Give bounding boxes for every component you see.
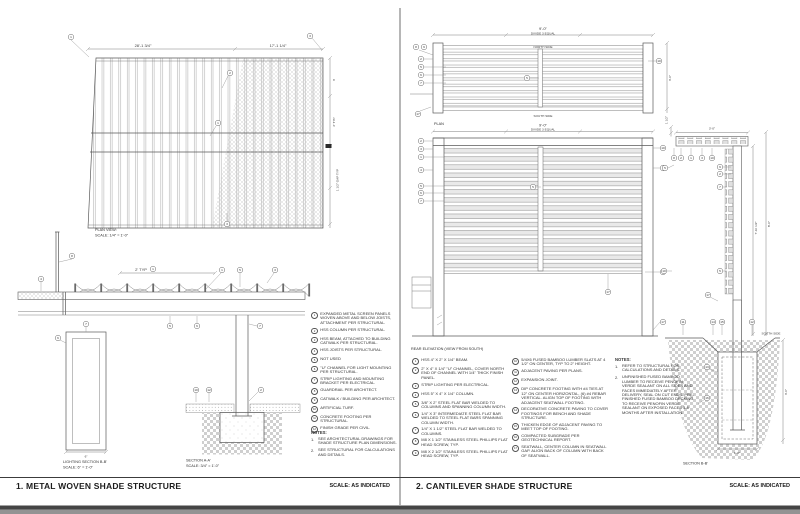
dimension-label: 9'-0" bbox=[539, 26, 548, 31]
dimension-label: 8'-0" bbox=[767, 221, 771, 227]
svg-text:1: 1 bbox=[70, 35, 72, 39]
view-label: PLAN bbox=[434, 122, 444, 126]
keynote-number: 8 bbox=[311, 388, 318, 395]
svg-text:14: 14 bbox=[711, 320, 715, 324]
keynote-item: 8 GUARDRAIL PER ARCHITECT. bbox=[311, 388, 399, 395]
keynote-number: 4 bbox=[412, 392, 419, 399]
right-keynote-list-a: 1 HSS 4" X 2" X 1/4" BEAM. 2 2" X 4" X 1… bbox=[412, 358, 508, 461]
dimension-label: 3' bbox=[332, 78, 336, 81]
svg-text:6: 6 bbox=[196, 324, 198, 328]
keynote-number: 9 bbox=[311, 397, 318, 404]
keynote-item: 15 THICKEN EDGE OF ADJACENT PAVING TO ME… bbox=[512, 423, 610, 432]
view-scale-label: SCALE: 3/4" = 1'-0" bbox=[186, 464, 220, 468]
sheet-bottom-edge bbox=[0, 506, 800, 514]
keynote-item: 6 1/4" X 3" INTERMEDIATE STEEL FLAT BAR … bbox=[412, 412, 508, 425]
svg-text:1: 1 bbox=[690, 156, 692, 160]
keynote-number: 2 bbox=[412, 367, 419, 374]
keynote-item: 4 HSS 5" X 4" X 1/4" COLUMN. bbox=[412, 392, 508, 399]
svg-text:7: 7 bbox=[259, 324, 261, 328]
svg-text:2: 2 bbox=[420, 139, 422, 143]
keynote-text: 2" X 4" X 1/4" "U" CHANNEL, COVER NORTH … bbox=[421, 367, 508, 380]
dimension-label: 6" bbox=[85, 455, 88, 459]
svg-text:4: 4 bbox=[420, 168, 422, 172]
side-label: NORTH SIDE bbox=[533, 45, 552, 49]
keynote-number: 13 bbox=[512, 387, 519, 394]
keynote-text: THICKEN EDGE OF ADJACENT PAVING TO MEET … bbox=[521, 423, 610, 432]
left-plan-view-drawing: 28'-1 3/4" 17'-1 1/4" 3' 2' TYP 1 1/2" G… bbox=[71, 38, 340, 238]
svg-text:10: 10 bbox=[657, 59, 661, 63]
keynote-item: 13 DIP CONCRETE FOOTING WITH #4 TIES AT … bbox=[512, 387, 610, 405]
svg-text:1: 1 bbox=[221, 268, 223, 272]
keynote-number: 2 bbox=[311, 328, 318, 335]
keynote-item: 2 2" X 4" X 1/4" "U" CHANNEL, COVER NORT… bbox=[412, 367, 508, 380]
note-text: REFER TO STRUCTURAL FOR CALCULATIONS AND… bbox=[622, 364, 697, 373]
svg-text:1: 1 bbox=[217, 121, 219, 125]
svg-text:12: 12 bbox=[207, 388, 211, 392]
keynote-item: 1 HSS 4" X 2" X 1/4" BEAM. bbox=[412, 358, 508, 365]
keynote-text: 1/4" X 1 1/2" STEEL FLAT BAR WELDED TO C… bbox=[421, 427, 508, 436]
note-number: 1. bbox=[615, 364, 620, 373]
dimension-label: 2' TYP bbox=[135, 267, 147, 272]
note-text: SEE ARCHITECTURAL DRAWINGS FOR SHADE STR… bbox=[318, 437, 399, 446]
svg-text:7: 7 bbox=[420, 199, 422, 203]
dimension-label: 1 1/2" bbox=[665, 116, 669, 124]
keynote-text: STRIP LIGHTING PER ELECTRICAL. bbox=[421, 383, 489, 387]
keynote-text: HSS 5" X 4" X 1/4" COLUMN. bbox=[421, 392, 474, 396]
keynote-item: 5 3/8" X 2" STEEL FLAT BAR WELDED TO COL… bbox=[412, 401, 508, 410]
svg-text:2: 2 bbox=[420, 57, 422, 61]
svg-text:1: 1 bbox=[420, 155, 422, 159]
keynote-text: STRIP LIGHTING AND MOUNTING BRACKET PER … bbox=[320, 377, 399, 386]
keynote-number: 1 bbox=[412, 358, 419, 365]
keynote-item: 12 EXPANSION JOINT. bbox=[512, 378, 610, 385]
keynote-number: 1 bbox=[311, 312, 318, 319]
keynote-number: 7 bbox=[412, 427, 419, 434]
svg-text:17: 17 bbox=[661, 320, 665, 324]
svg-text:17: 17 bbox=[706, 293, 710, 297]
right-side-section-drawing: 3'-0" 1 1/2" 7'-10 1/2" 8'-0" bbox=[665, 116, 772, 336]
keynote-item: 3 HSS BEAM, ATTACHED TO BUILDING CATWALK… bbox=[311, 337, 399, 346]
keynote-number: 4 bbox=[311, 348, 318, 355]
keynote-number: 5 bbox=[311, 357, 318, 364]
svg-text:7: 7 bbox=[420, 81, 422, 85]
keynote-item: 1 EXPANDED METAL SCREEN PANELS WOVEN ABO… bbox=[311, 312, 399, 325]
keynote-number: 14 bbox=[512, 407, 519, 414]
notes-heading: NOTES: bbox=[615, 357, 697, 362]
keynote-number: 17 bbox=[512, 445, 519, 452]
view-label: PLAN VIEW: bbox=[95, 228, 117, 232]
keynote-number: 10 bbox=[512, 358, 519, 365]
note-item: 1. REFER TO STRUCTURAL FOR CALCULATIONS … bbox=[615, 364, 697, 373]
view-label: SECTION B-B' bbox=[683, 462, 708, 466]
svg-text:16: 16 bbox=[705, 396, 709, 400]
note-number: 2. bbox=[615, 375, 620, 415]
svg-text:3: 3 bbox=[420, 147, 422, 151]
keynote-text: "U" CHANNEL FOR LIGHT MOUNTING PER STRUC… bbox=[320, 366, 399, 375]
note-number: 2. bbox=[311, 448, 316, 457]
keynote-text: 5/4X6 FUSED BAMBOO LUMBER SLATS AT 4 1/2… bbox=[521, 358, 610, 367]
right-keynote-list-b: 10 5/4X6 FUSED BAMBOO LUMBER SLATS AT 4 … bbox=[512, 358, 610, 461]
svg-text:7: 7 bbox=[85, 322, 87, 326]
svg-text:2: 2 bbox=[260, 388, 262, 392]
keynote-item: 11 ADJACENT PAVING PER PLANS. bbox=[512, 369, 610, 376]
keynote-text: EXPANDED METAL SCREEN PANELS WOVEN ABOVE… bbox=[320, 312, 399, 325]
side-label: SOUTH SIDE bbox=[762, 332, 781, 336]
dimension-label: 28'-1 3/4" bbox=[135, 43, 152, 48]
keynote-number: 16 bbox=[512, 434, 519, 441]
svg-text:3: 3 bbox=[309, 34, 311, 38]
svg-text:17: 17 bbox=[416, 112, 420, 116]
keynote-item: 17 SEATWALL, CENTER COLUMN IN SEATWALL G… bbox=[512, 445, 610, 458]
view-scale-label: SCALE: 6" = 1'-0" bbox=[63, 466, 94, 470]
svg-text:6: 6 bbox=[420, 191, 422, 195]
keynote-item: 2 HSS COLUMN PER STRUCTURAL. bbox=[311, 328, 399, 335]
view-label: REAR ELEVATION (VIEW FROM SOUTH) bbox=[411, 347, 484, 351]
svg-text:1: 1 bbox=[152, 267, 154, 271]
keynote-text: M8 X 1 1/2" STAINLESS STEEL PHILLIPS FLA… bbox=[421, 438, 508, 447]
keynote-text: COMPACTED SUBGRADE PER GEOTECHNICAL REPO… bbox=[521, 434, 610, 443]
svg-text:5: 5 bbox=[420, 184, 422, 188]
keynote-text: NOT USED bbox=[320, 357, 341, 361]
panel-scale: SCALE: AS INDICATED bbox=[330, 483, 391, 489]
keynote-item: 11 CONCRETE FOOTING PER STRUCTURAL. bbox=[311, 415, 399, 424]
keynote-item: 10 5/4X6 FUSED BAMBOO LUMBER SLATS AT 4 … bbox=[512, 358, 610, 367]
svg-text:10: 10 bbox=[661, 146, 665, 150]
dimension-label: 1 1/2" GAP TYP bbox=[336, 169, 340, 191]
dimension-label: 7'-10 1/2" bbox=[754, 221, 758, 234]
svg-text:8: 8 bbox=[71, 254, 73, 258]
keynote-text: HSS 4" X 2" X 1/4" BEAM. bbox=[421, 358, 468, 362]
keynote-item: 9 M8 X 2 1/2" STAINLESS STEEL PHILLIPS F… bbox=[412, 450, 508, 459]
svg-text:5: 5 bbox=[532, 185, 534, 189]
keynote-text: SEATWALL, CENTER COLUMN IN SEATWALL GAP.… bbox=[521, 445, 610, 458]
svg-text:5: 5 bbox=[526, 76, 528, 80]
svg-text:5: 5 bbox=[664, 166, 666, 170]
keynote-text: HSS BEAM, ATTACHED TO BUILDING CATWALK P… bbox=[320, 337, 399, 346]
svg-text:2: 2 bbox=[719, 172, 721, 176]
keynote-item: 3 STRIP LIGHTING PER ELECTRICAL. bbox=[412, 383, 508, 390]
svg-text:2: 2 bbox=[680, 156, 682, 160]
keynote-item: 7 STRIP LIGHTING AND MOUNTING BRACKET PE… bbox=[311, 377, 399, 386]
keynote-number: 6 bbox=[412, 412, 419, 419]
keynote-number: 11 bbox=[512, 369, 519, 376]
drawing-sheet: 28'-1 3/4" 17'-1 1/4" 3' 2' TYP 1 1/2" G… bbox=[0, 0, 800, 514]
dimension-label: 17'-1 1/4" bbox=[270, 43, 287, 48]
left-keynote-list: 1 EXPANDED METAL SCREEN PANELS WOVEN ABO… bbox=[311, 312, 399, 435]
note-text: UNFINISHED FUSED BAMBOO LUMBER TO RECEIV… bbox=[622, 375, 697, 415]
svg-text:11: 11 bbox=[681, 320, 684, 324]
svg-text:10: 10 bbox=[194, 388, 198, 392]
svg-text:5: 5 bbox=[169, 324, 171, 328]
drawing-linework: 28'-1 3/4" 17'-1 1/4" 3' 2' TYP 1 1/2" G… bbox=[0, 0, 800, 514]
svg-text:13: 13 bbox=[705, 365, 709, 369]
keynote-item: 5 NOT USED bbox=[311, 357, 399, 364]
note-number: 1. bbox=[311, 437, 316, 446]
keynote-number: 9 bbox=[412, 450, 419, 457]
dimension-label: 2' TYP bbox=[332, 117, 336, 126]
left-section-elevation-drawing: 2' TYP bbox=[18, 232, 310, 410]
keynote-text: 3/8" X 2" STEEL FLAT BAR WELDED TO COLUM… bbox=[421, 401, 508, 410]
keynote-number: 8 bbox=[412, 438, 419, 445]
svg-text:6: 6 bbox=[57, 336, 59, 340]
keynote-number: 3 bbox=[311, 337, 318, 344]
keynote-text: ADJACENT PAVING PER PLANS. bbox=[521, 369, 582, 373]
svg-text:3: 3 bbox=[274, 268, 276, 272]
note-item: 1. SEE ARCHITECTURAL DRAWINGS FOR SHADE … bbox=[311, 437, 399, 446]
keynote-item: 7 1/4" X 1 1/2" STEEL FLAT BAR WELDED TO… bbox=[412, 427, 508, 436]
right-panel-titlebar: 2. CANTILEVER SHADE STRUCTURE SCALE: AS … bbox=[400, 478, 800, 494]
keynote-item: 10 ARTIFICIAL TURF. bbox=[311, 406, 399, 413]
svg-text:6: 6 bbox=[420, 73, 422, 77]
svg-text:5: 5 bbox=[420, 65, 422, 69]
svg-text:3: 3 bbox=[226, 222, 228, 226]
svg-text:9: 9 bbox=[719, 165, 721, 169]
dimension-label: DIVIDE 3 EQUAL bbox=[531, 32, 556, 36]
left-panel-titlebar: 1. METAL WOVEN SHADE STRUCTURE SCALE: AS… bbox=[0, 478, 400, 494]
keynote-text: DIP CONCRETE FOOTING WITH #4 TIES AT 12"… bbox=[521, 387, 610, 405]
view-label: SECTION A-A' bbox=[186, 459, 211, 463]
svg-text:5: 5 bbox=[719, 269, 721, 273]
keynote-item: 16 COMPACTED SUBGRADE PER GEOTECHNICAL R… bbox=[512, 434, 610, 443]
right-general-notes: NOTES: 1. REFER TO STRUCTURAL FOR CALCUL… bbox=[615, 357, 697, 418]
keynote-text: CONCRETE FOOTING PER STRUCTURAL. bbox=[320, 415, 399, 424]
left-footing-section-drawing: SECTION A-A' SCALE: 3/4" = 1'-0" bbox=[186, 392, 300, 468]
svg-text:10: 10 bbox=[662, 269, 666, 273]
note-item: 2. SEE STRUCTURAL FOR CALCULATIONS AND D… bbox=[311, 448, 399, 457]
left-lighting-section-drawing: 6" LIGHTING SECTION B-B' SCALE: 6" = 1'-… bbox=[60, 327, 108, 470]
panel-title: 2. CANTILEVER SHADE STRUCTURE bbox=[416, 481, 572, 491]
keynote-text: EXPANSION JOINT. bbox=[521, 378, 557, 382]
dimension-label: DIVIDE 3 EQUAL bbox=[531, 128, 556, 132]
keynote-text: HSS COLUMN PER STRUCTURAL. bbox=[320, 328, 385, 332]
keynote-number: 5 bbox=[412, 401, 419, 408]
view-label: LIGHTING SECTION B-B' bbox=[63, 460, 107, 464]
svg-text:17: 17 bbox=[606, 290, 610, 294]
keynote-item: 6 "U" CHANNEL FOR LIGHT MOUNTING PER STR… bbox=[311, 366, 399, 375]
keynote-number: 10 bbox=[311, 406, 318, 413]
keynote-number: 15 bbox=[512, 423, 519, 430]
svg-text:4: 4 bbox=[40, 277, 42, 281]
left-general-notes: NOTES: 1. SEE ARCHITECTURAL DRAWINGS FOR… bbox=[311, 430, 399, 459]
keynote-item: 4 HSS JOISTS PER STRUCTURAL. bbox=[311, 348, 399, 355]
keynote-text: 1/4" X 3" INTERMEDIATE STEEL FLAT BAR WE… bbox=[421, 412, 508, 425]
notes-heading: NOTES: bbox=[311, 430, 399, 435]
dimension-label: 3'-0" bbox=[784, 389, 788, 395]
keynote-text: M8 X 2 1/2" STAINLESS STEEL PHILLIPS FLA… bbox=[421, 450, 508, 459]
keynote-text: GUARDRAIL PER ARCHITECT. bbox=[320, 388, 377, 392]
keynote-number: 6 bbox=[311, 366, 318, 373]
panel-scale: SCALE: AS INDICATED bbox=[730, 483, 791, 489]
svg-text:15: 15 bbox=[720, 320, 724, 324]
svg-text:2: 2 bbox=[229, 71, 231, 75]
svg-text:3: 3 bbox=[701, 156, 703, 160]
keynote-text: ARTIFICIAL TURF. bbox=[320, 406, 354, 410]
right-rear-elevation-drawing: 9'-0" DIVIDE 3 EQUAL REAR ELEVATION (VIE… bbox=[411, 123, 660, 352]
keynote-text: CATWALK / BUILDING PER ARCHITECT. bbox=[320, 397, 395, 401]
keynote-number: 11 bbox=[311, 415, 318, 422]
keynote-text: DECORATIVE CONCRETE PAVING TO COVER FOOT… bbox=[521, 407, 610, 420]
keynote-number: 7 bbox=[311, 377, 318, 384]
panel-title: 1. METAL WOVEN SHADE STRUCTURE bbox=[16, 481, 181, 491]
svg-text:12: 12 bbox=[750, 320, 754, 324]
svg-text:8: 8 bbox=[673, 156, 675, 160]
keynote-item: 8 M8 X 1 1/2" STAINLESS STEEL PHILLIPS F… bbox=[412, 438, 508, 447]
svg-text:5: 5 bbox=[239, 268, 241, 272]
right-plan-drawing: 9'-0" DIVIDE 3 EQUAL NORTH SIDE SOUTH SI… bbox=[410, 26, 672, 126]
side-label: SOUTH SIDE bbox=[534, 114, 553, 118]
keynote-number: 3 bbox=[412, 383, 419, 390]
keynote-number: 12 bbox=[512, 378, 519, 385]
dimension-label: 1'-6" bbox=[734, 451, 740, 455]
svg-text:9: 9 bbox=[423, 45, 425, 49]
svg-text:10: 10 bbox=[710, 156, 714, 160]
keynote-text: HSS JOISTS PER STRUCTURAL. bbox=[320, 348, 382, 352]
keynote-item: 9 CATWALK / BUILDING PER ARCHITECT. bbox=[311, 397, 399, 404]
dimension-label: 3'-0" bbox=[668, 75, 672, 81]
dimension-label: 3'-0" bbox=[709, 127, 715, 131]
keynote-item: 14 DECORATIVE CONCRETE PAVING TO COVER F… bbox=[512, 407, 610, 420]
view-scale-label: SCALE: 1/4" = 1'-0" bbox=[95, 234, 129, 238]
note-item: 2. UNFINISHED FUSED BAMBOO LUMBER TO REC… bbox=[615, 375, 697, 415]
svg-text:7: 7 bbox=[719, 185, 721, 189]
svg-text:8: 8 bbox=[415, 45, 417, 49]
note-text: SEE STRUCTURAL FOR CALCULATIONS AND DETA… bbox=[318, 448, 399, 457]
